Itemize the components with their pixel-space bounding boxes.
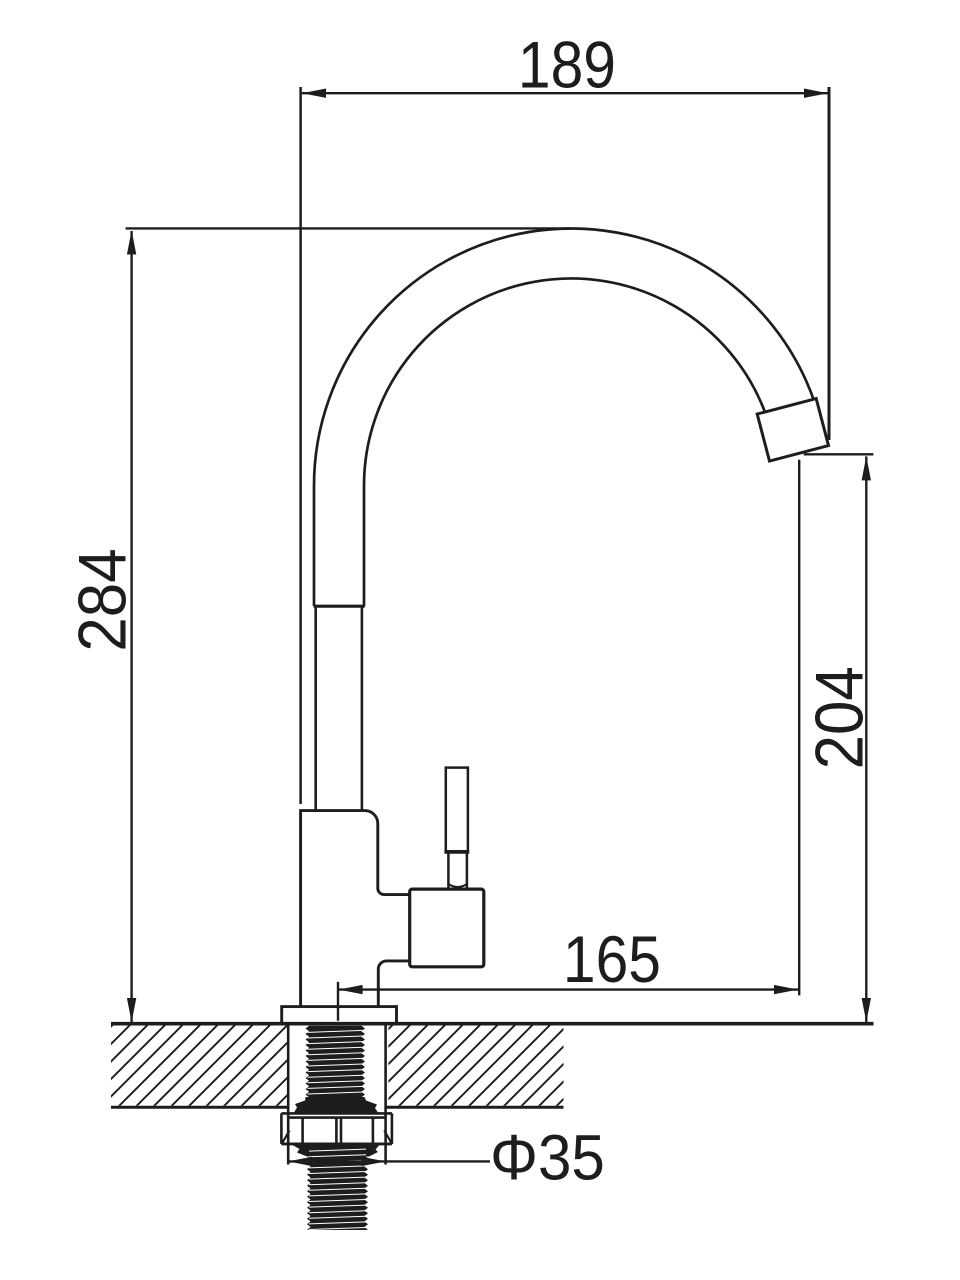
svg-text:284: 284 (64, 548, 140, 651)
svg-text:165: 165 (563, 923, 661, 997)
svg-text:189: 189 (518, 28, 616, 102)
svg-text:204: 204 (801, 666, 877, 769)
svg-text:Φ35: Φ35 (490, 1123, 605, 1194)
